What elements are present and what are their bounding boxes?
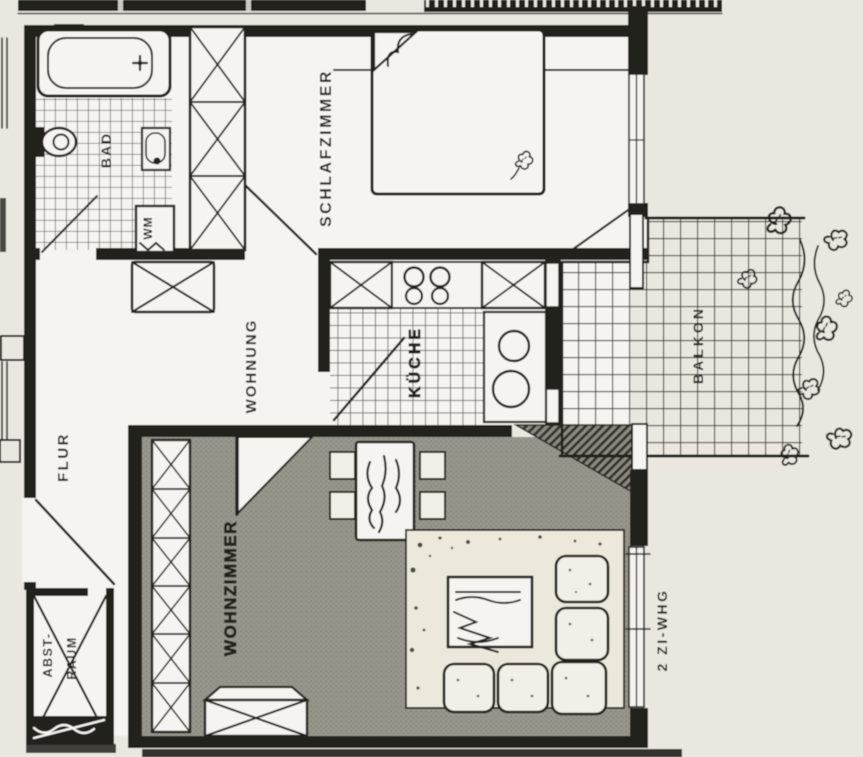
washing-machine-label: WM: [141, 216, 155, 239]
living-room-label: WOHNZIMMER: [221, 520, 240, 656]
bathroom-label: BAD: [98, 132, 114, 168]
sofa-cushion: [552, 662, 606, 714]
chair-icon: [330, 492, 355, 519]
toilet-icon: [36, 127, 76, 157]
washbasin-icon: [142, 128, 170, 170]
floor-plan-drawing: WM BAD SCHLAFZIMMER: [0, 0, 863, 757]
sofa-cushion: [556, 556, 608, 602]
window: [629, 74, 644, 204]
apartment-area-label: WOHNUNG: [243, 319, 260, 414]
bathtub-icon: [38, 30, 170, 96]
sofa-cushion: [444, 664, 494, 712]
side-table-icon: [205, 687, 307, 736]
storage-label-line2: RAUM: [65, 636, 79, 680]
kitchen-label: KÜCHE: [405, 326, 424, 398]
hall-label: FLUR: [55, 432, 72, 482]
sofa-cushion: [556, 608, 608, 660]
hall-wardrobe: [132, 262, 214, 312]
washing-machine: WM: [136, 206, 174, 252]
storage-label-line1: ABST-: [41, 633, 55, 678]
living-room-closet: [152, 440, 190, 732]
storage-room: ABST- RAUM: [30, 588, 110, 740]
kitchen-cabinet: [330, 262, 392, 308]
sofa-cushion: [498, 664, 548, 712]
bedroom-label: SCHLAFZIMMER: [318, 69, 335, 227]
floor-plan-scan: WM BAD SCHLAFZIMMER: [0, 0, 863, 757]
chair-icon: [420, 492, 445, 519]
balcony-label: BALKON: [690, 306, 706, 384]
bathroom-closet: [190, 27, 245, 250]
chair-icon: [420, 452, 445, 479]
kitchen-cabinet: [482, 262, 545, 308]
coffee-table-icon: [448, 577, 532, 652]
stove-icon: [392, 262, 482, 308]
entrance-opening: [22, 498, 38, 582]
apartment-type-label: 2 ZI-WHG: [654, 589, 670, 672]
balcony-door-leaf: [630, 214, 643, 288]
terrace-door-leaf: [632, 424, 647, 470]
kitchen-sink-icon: [484, 312, 546, 422]
chair-icon: [330, 452, 355, 479]
